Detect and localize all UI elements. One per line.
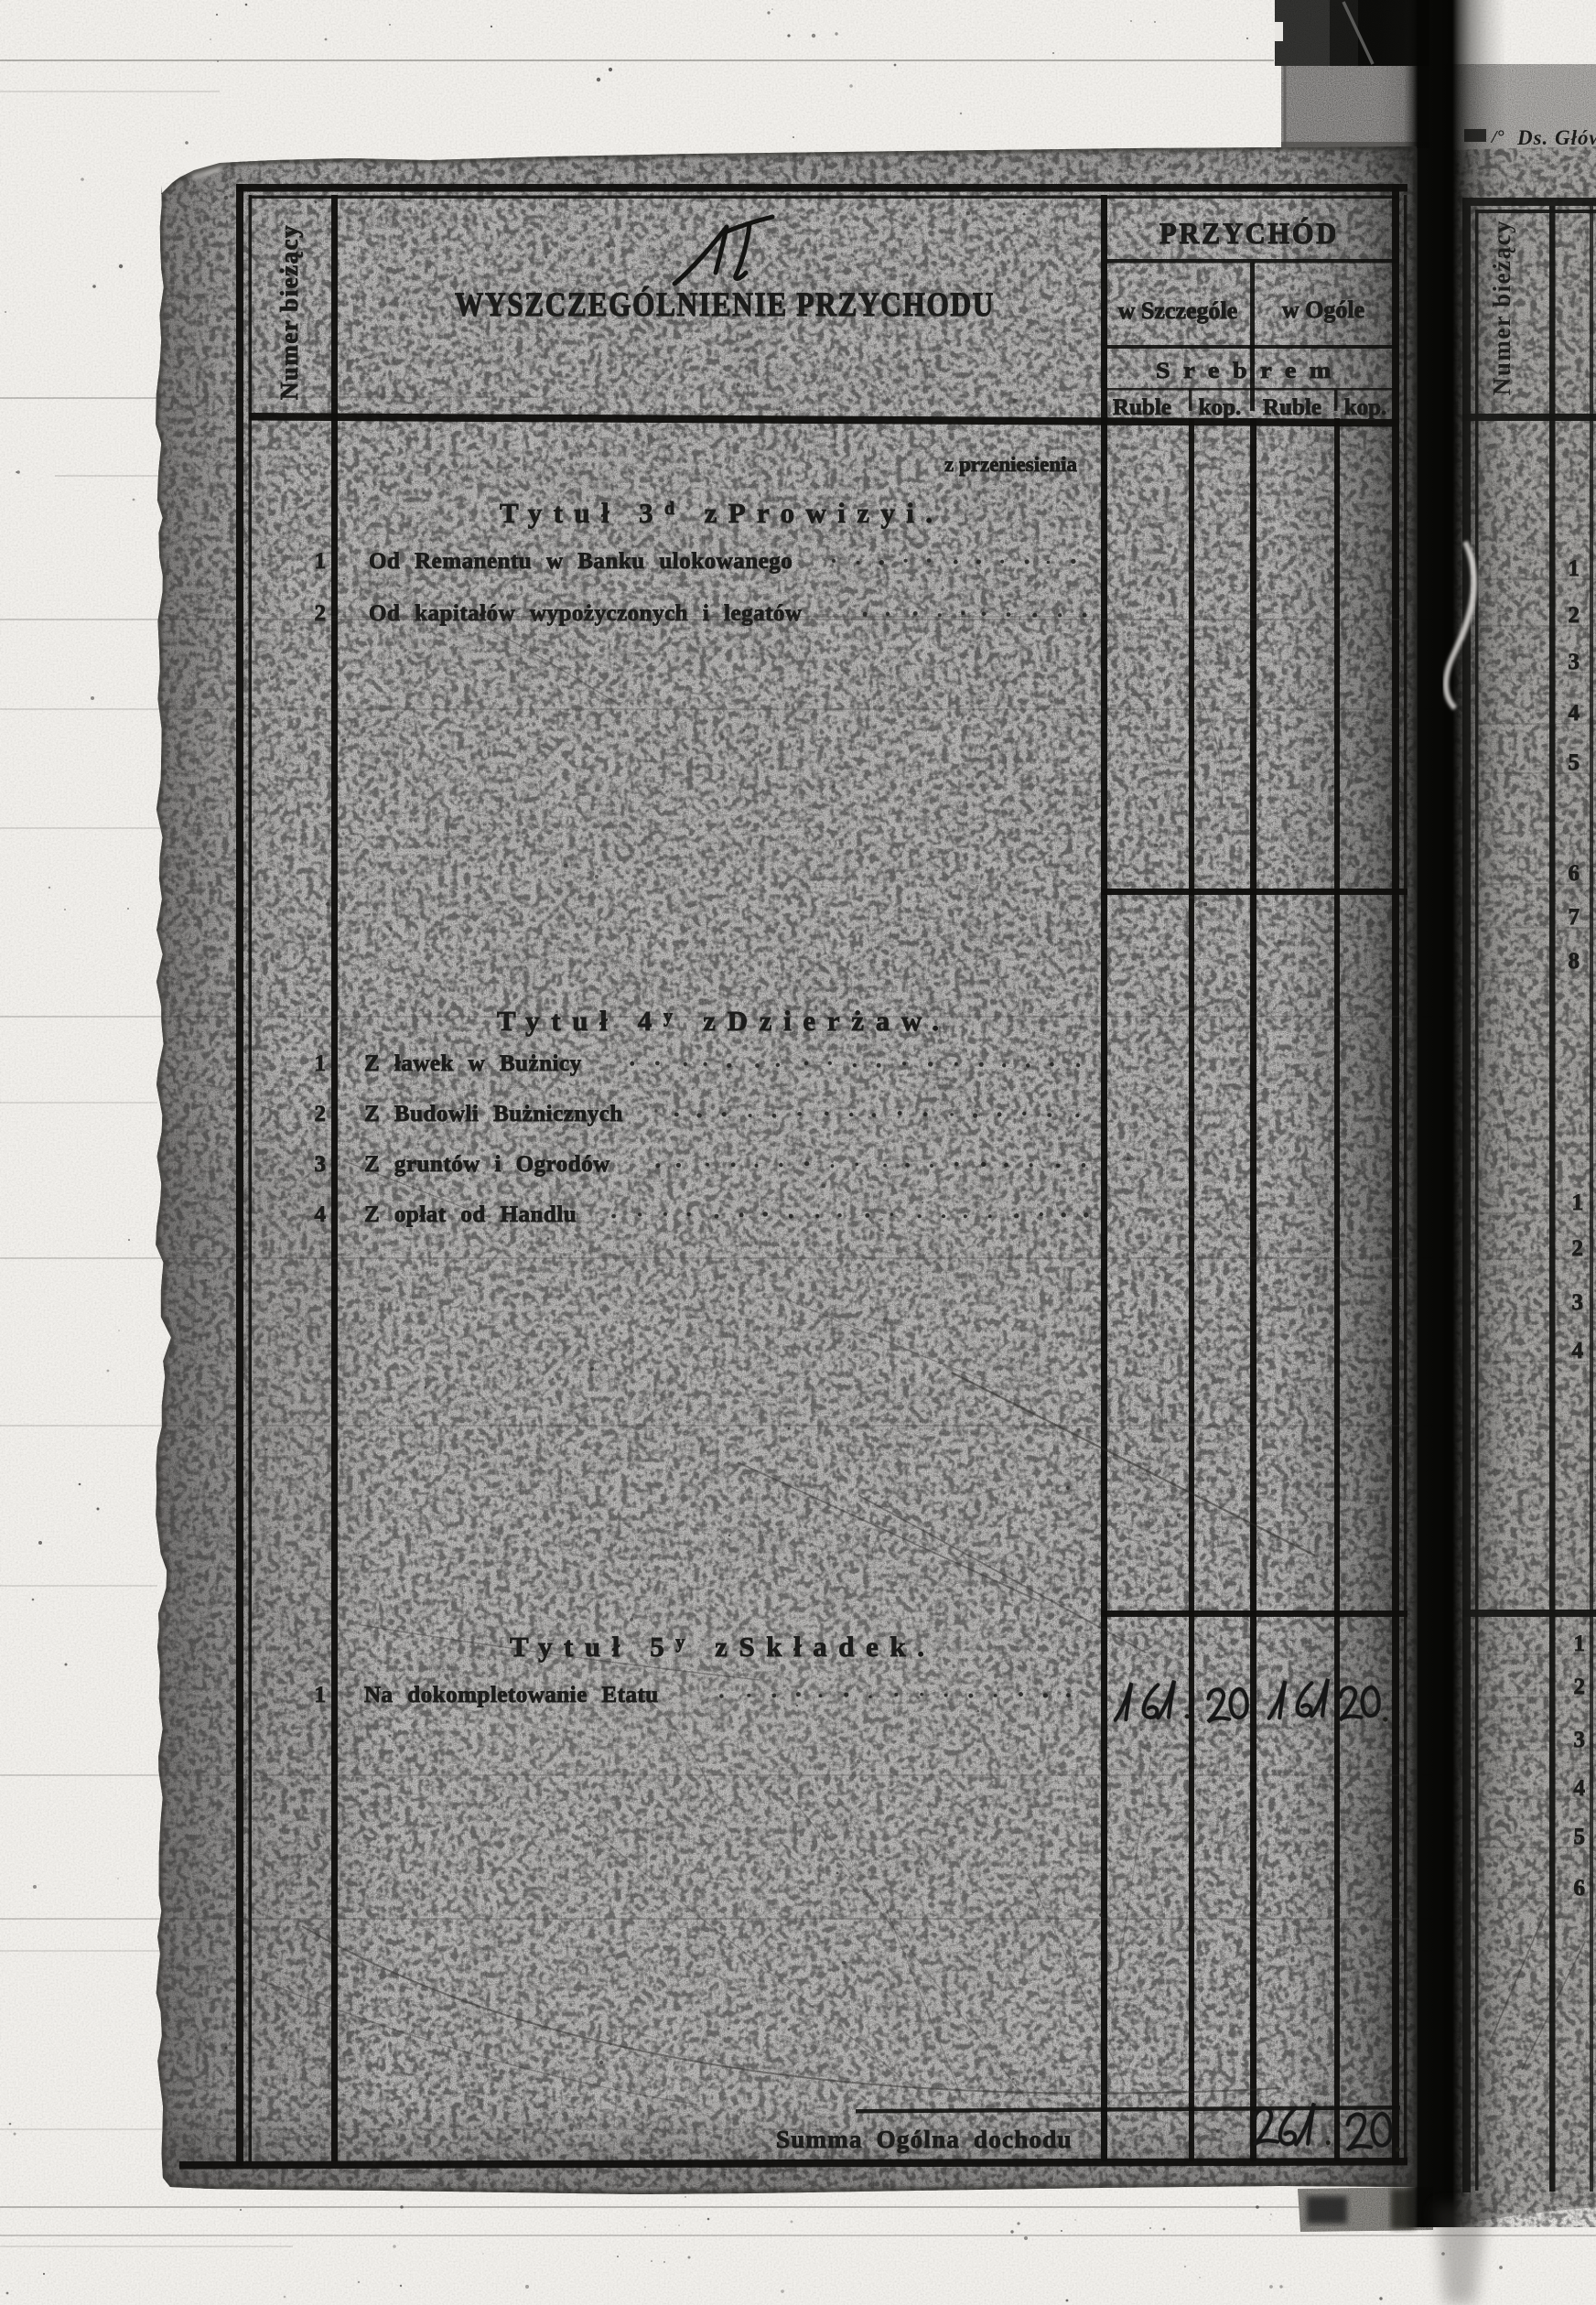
svg-text:Ds. Głów: Ds. Głów	[1516, 126, 1596, 149]
svg-text:4: 4	[1569, 701, 1580, 726]
svg-text:w Ogóle: w Ogóle	[1282, 296, 1364, 323]
svg-text:5: 5	[1569, 750, 1580, 775]
svg-text:2: 2	[1569, 603, 1580, 628]
svg-text:Numer bieżący: Numer bieżący	[275, 224, 303, 400]
svg-text:Od kapitałów wypożyczonych i l: Od kapitałów wypożyczonych i legatów	[369, 601, 802, 626]
svg-text:···: ···	[394, 320, 425, 343]
svg-text:4: 4	[315, 1202, 327, 1227]
svg-text:z przeniesienia: z przeniesienia	[944, 453, 1077, 476]
svg-text:2: 2	[1574, 1675, 1586, 1699]
svg-text:PRZYCHÓD: PRZYCHÓD	[1159, 216, 1339, 251]
svg-text:1: 1	[315, 1683, 327, 1707]
svg-text:3: 3	[315, 1152, 327, 1177]
svg-text:459678: 459678	[318, 350, 450, 373]
svg-text:4: 4	[1572, 1339, 1584, 1363]
svg-text:WYSZCZEGÓLNIENIE PRZYCHODU: WYSZCZEGÓLNIENIE PRZYCHODU	[455, 285, 995, 324]
svg-text:4: 4	[1574, 1776, 1586, 1801]
svg-text:3: 3	[1572, 1290, 1584, 1315]
svg-text:8: 8	[1569, 949, 1580, 974]
svg-text:1: 1	[1569, 556, 1580, 581]
svg-text:Ruble: Ruble	[1263, 395, 1321, 420]
svg-text:5: 5	[1574, 1825, 1586, 1849]
svg-text:kop.: kop.	[1199, 395, 1242, 420]
svg-text:Na dokompletowanie Etatu: Na dokompletowanie Etatu	[364, 1683, 659, 1707]
svg-text:1: 1	[315, 549, 327, 574]
svg-text:OT:9H0: OT:9H0	[357, 206, 484, 232]
svg-text:Tytuł 4y zDzierżaw.: Tytuł 4y zDzierżaw.	[497, 1005, 947, 1037]
svg-text:3: 3	[1569, 650, 1580, 674]
svg-text:Z gruntów i Ogrodów: Z gruntów i Ogrodów	[364, 1152, 610, 1177]
svg-text:2: 2	[1572, 1236, 1584, 1261]
svg-text:Tytuł 5y zSkładek.: Tytuł 5y zSkładek.	[510, 1631, 933, 1663]
svg-text:3: 3	[1574, 1728, 1586, 1752]
svg-text:w Szczególe: w Szczególe	[1118, 297, 1238, 324]
svg-text:Z ławek w Bużnicy: Z ławek w Bużnicy	[364, 1051, 582, 1076]
svg-text:Tytuł 3d zProwizyi.: Tytuł 3d zProwizyi.	[500, 497, 941, 529]
svg-text:Z opłat od Handlu: Z opłat od Handlu	[364, 1202, 577, 1227]
svg-text:1: 1	[1572, 1190, 1584, 1215]
svg-text:kop.: kop.	[1344, 395, 1387, 420]
svg-text:6: 6	[1574, 1876, 1586, 1901]
svg-text:2: 2	[315, 1102, 327, 1126]
svg-text:1: 1	[1574, 1632, 1586, 1656]
svg-text:Z Budowli Bużnicznych: Z Budowli Bużnicznych	[364, 1102, 623, 1126]
svg-text:0VT0L•H: 0VT0L•H	[337, 382, 467, 406]
svg-text:1: 1	[315, 1051, 327, 1076]
svg-text:6: 6	[1569, 861, 1580, 886]
svg-text:2: 2	[315, 601, 327, 626]
svg-text:Srebrem: Srebrem	[1156, 359, 1344, 383]
svg-text:7: 7	[1569, 905, 1580, 930]
svg-text:Ruble: Ruble	[1113, 395, 1171, 420]
svg-text:Od Remanentu w Banku ulokowane: Od Remanentu w Banku ulokowanego	[369, 549, 793, 574]
